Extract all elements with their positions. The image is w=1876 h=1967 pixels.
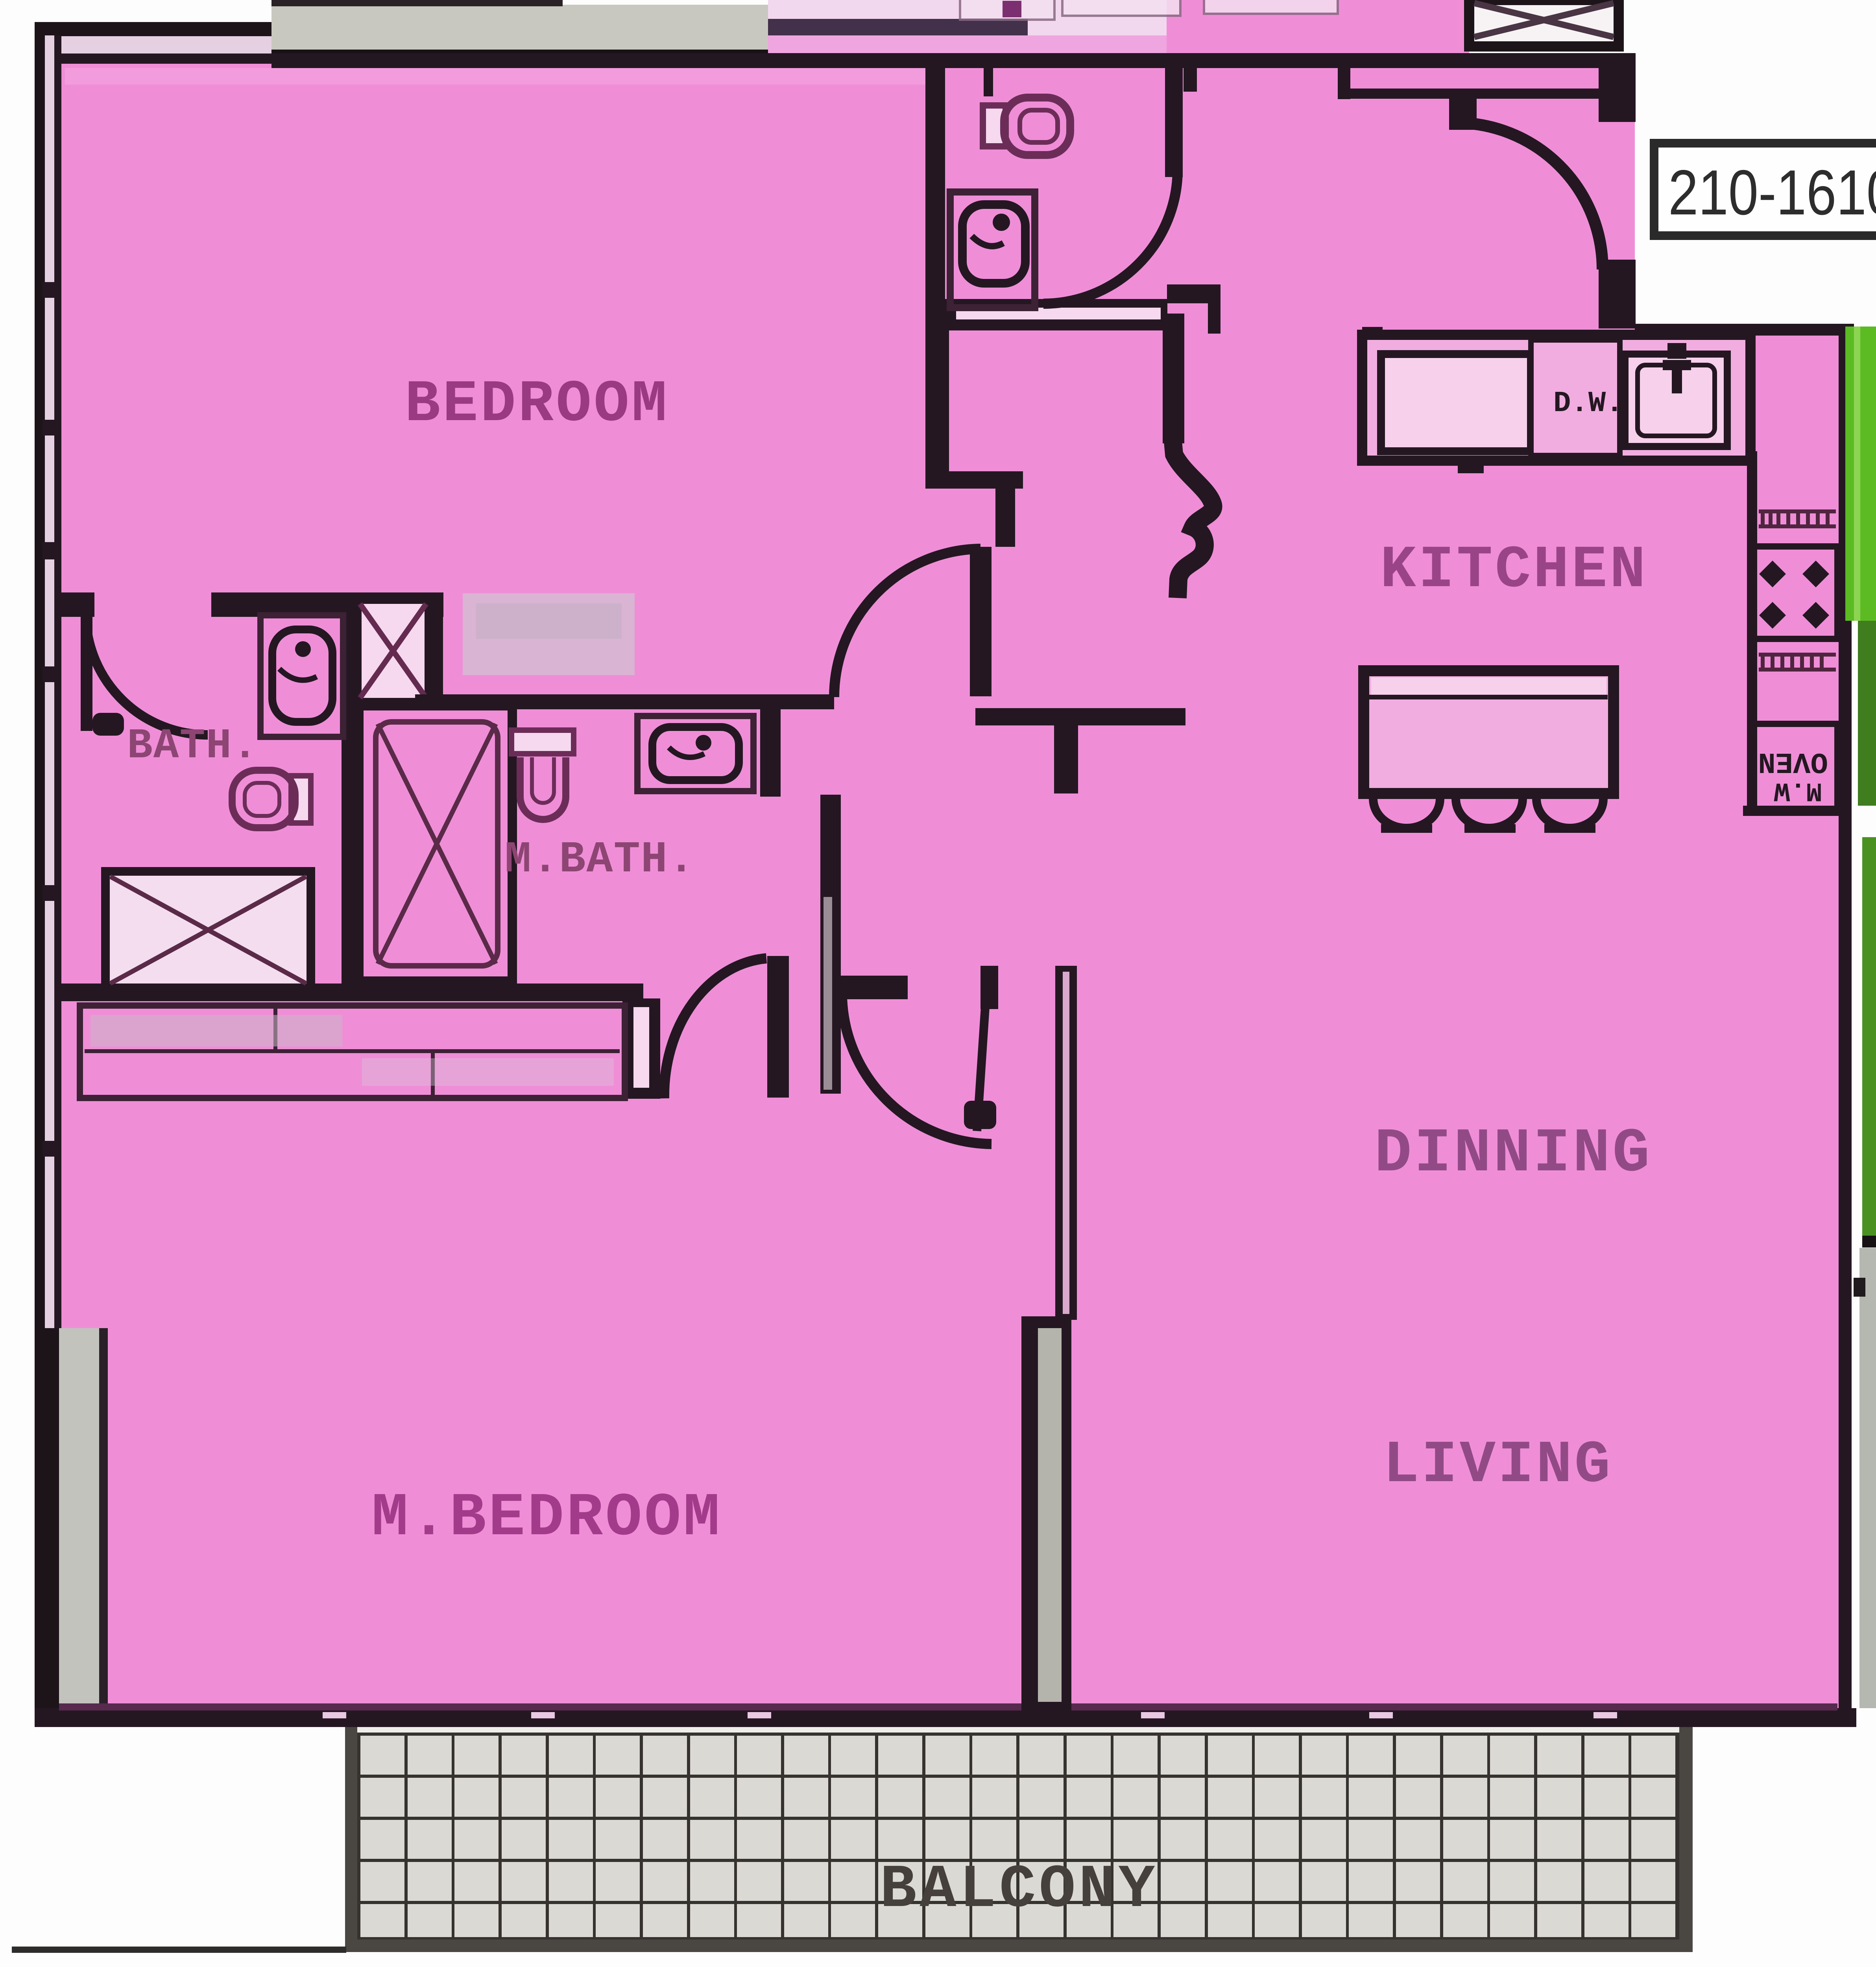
svg-text:D.W.: D.W. xyxy=(1553,387,1623,420)
svg-text:M.BEDROOM: M.BEDROOM xyxy=(371,1484,722,1553)
svg-text:M.W: M.W xyxy=(1774,775,1822,806)
svg-text:210-1610: 210-1610 xyxy=(1668,157,1876,228)
svg-text:M.BATH.: M.BATH. xyxy=(505,835,695,885)
svg-text:KITCHEN: KITCHEN xyxy=(1380,536,1648,604)
svg-text:OVEN: OVEN xyxy=(1758,745,1828,778)
svg-text:LIVING: LIVING xyxy=(1383,1431,1612,1499)
svg-text:BALCONY: BALCONY xyxy=(880,1855,1158,1925)
svg-text:DINNING: DINNING xyxy=(1374,1119,1652,1189)
svg-text:BATH.: BATH. xyxy=(127,722,259,770)
svg-text:BEDROOM: BEDROOM xyxy=(405,371,669,438)
